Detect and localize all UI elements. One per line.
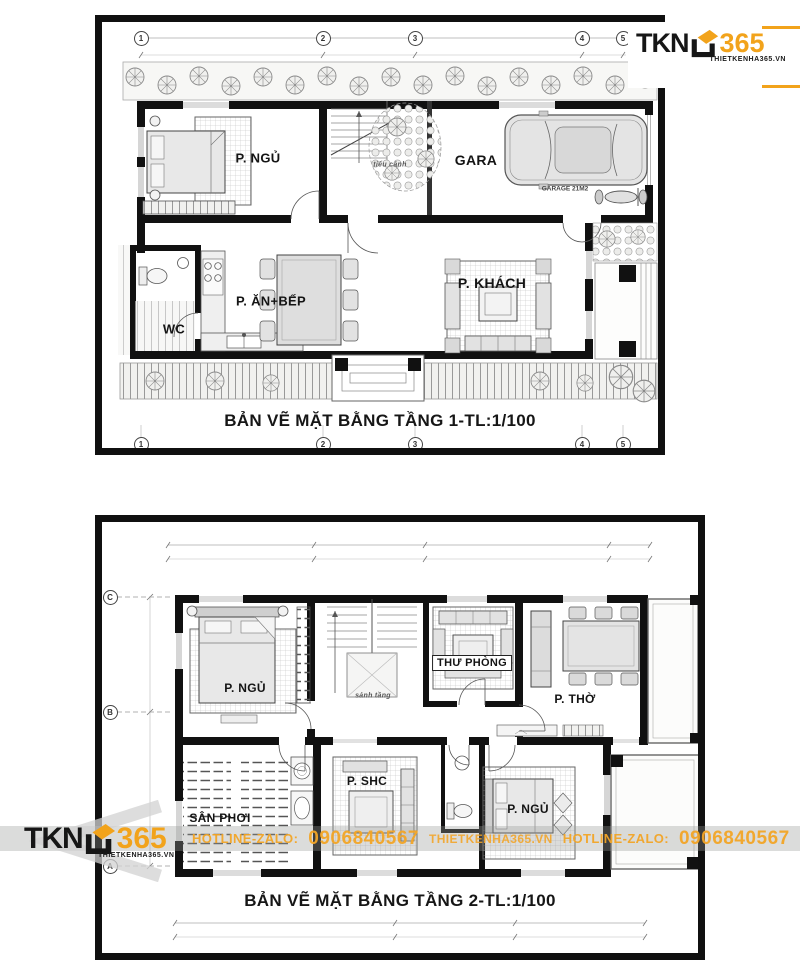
room-label-study: THƯ PHÒNG (432, 655, 512, 671)
grid-bubble-bottom-4: 4 (575, 437, 590, 452)
floor2-wc-fixtures (447, 756, 472, 819)
brand-logo-bottom-left: TKN 365 THIETKENHA365.VN (10, 800, 200, 882)
grid-bubble-row-c: C (103, 590, 118, 605)
brand-logo-top-right: TKN 365 THIETKENHA365.VN (628, 22, 800, 88)
grid-bubble-bottom-3: 3 (408, 437, 423, 452)
floor1-deck-band (120, 355, 657, 402)
logo-text-tkn: TKN (24, 822, 83, 856)
floor2-worship-furniture (531, 607, 639, 687)
grid-bubble-bottom-1: 1 (134, 437, 149, 452)
grid-bubble-top-2: 2 (316, 31, 331, 46)
room-label-bedroom1-f2: P. NGỦ (224, 681, 266, 695)
watermark-hotline-label-2: HOTLINE-ZALO: (563, 831, 669, 846)
room-label-living: P. KHÁCH (458, 275, 526, 291)
room-label-garage-note: GARAGE 21M2 (542, 186, 589, 193)
grid-bubble-top-1: 1 (134, 31, 149, 46)
floor1-side-porch (593, 223, 657, 359)
watermark-hotline-label-1: HOTLINE-ZALO: (192, 831, 298, 846)
floor1-garden-feature (369, 103, 441, 191)
watermark-phone-1: 0906840567 (308, 828, 419, 850)
floor2-study-furniture (433, 607, 513, 689)
house-icon (84, 822, 116, 856)
floor1-panel: 1 2 3 4 5 1 2 3 4 5 P. NGỦ GARA tiểu cản… (95, 15, 665, 455)
floor1-title: BẢN VẼ MẶT BẰNG TẦNG 1-TL:1/100 (95, 411, 665, 431)
room-label-worship: P. THỜ (554, 692, 595, 706)
room-label-bedroom2-f2: P. NGỦ (507, 802, 549, 816)
floor1-motorbike (595, 188, 647, 206)
room-label-wc-f1: WC (163, 322, 185, 337)
floor1-wc-fixtures (118, 245, 195, 355)
logo-accent-bar-top (762, 26, 800, 29)
logo-text-365: 365 (117, 822, 167, 856)
floor2-panel: C B A P. NGỦ sảnh tầng THƯ PHÒNG P. THỜ … (95, 515, 705, 960)
floor1-living-set (445, 259, 551, 353)
room-label-bedroom-f1: P. NGỦ (236, 151, 281, 166)
logo-text-365: 365 (720, 28, 765, 59)
grid-bubble-top-3: 3 (408, 31, 423, 46)
logo-text-tkn: TKN (636, 28, 689, 59)
floor1-top-dimensions (139, 35, 626, 58)
floorplan-sheet: 1 2 3 4 5 1 2 3 4 5 P. NGỦ GARA tiểu cản… (0, 0, 800, 975)
watermark-website: THIETKENHA365.VN (429, 832, 553, 846)
room-label-lobby: sảnh tầng (355, 693, 391, 700)
grid-bubble-top-4: 4 (575, 31, 590, 46)
house-icon (690, 28, 719, 59)
logo-website: THIETKENHA365.VN (98, 852, 200, 859)
floor2-bedroom1-furniture (187, 606, 310, 723)
floor1-drawing (95, 15, 665, 455)
floor2-title: BẢN VẼ MẶT BẰNG TẦNG 2-TL:1/100 (95, 891, 705, 911)
grid-bubble-bottom-5: 5 (616, 437, 631, 452)
grid-bubble-row-b: B (103, 705, 118, 720)
logo-accent-bar-bottom (762, 85, 800, 88)
room-label-garage: GARA (455, 152, 497, 168)
room-label-family: P. SHC (347, 774, 387, 788)
grid-bubble-bottom-2: 2 (316, 437, 331, 452)
room-label-kitchen-dining: P. ĂN+BẾP (236, 294, 306, 309)
floor2-staircase (327, 599, 417, 697)
room-label-garden: tiểu cảnh (373, 162, 406, 169)
floor1-planting-band (123, 62, 657, 100)
watermark-phone-2: 0906840567 (679, 828, 790, 850)
